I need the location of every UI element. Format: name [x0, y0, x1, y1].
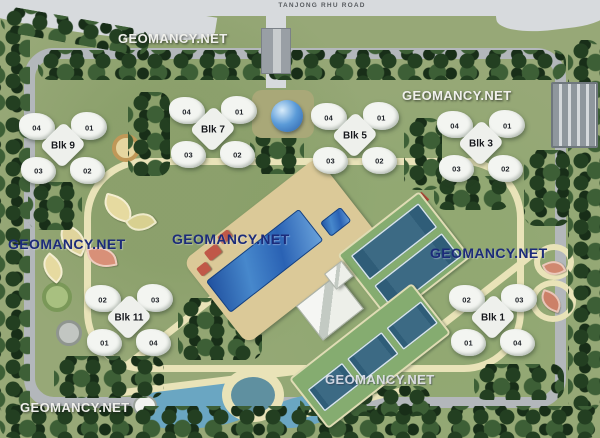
unit-number: 02 [233, 150, 242, 159]
road-name-label: TANJONG RHU ROAD [222, 2, 422, 9]
unit-number: 01 [235, 107, 244, 116]
watermark: GEOMANCY.NET [325, 372, 435, 387]
block-label: Blk 7 [201, 125, 225, 136]
unit-number: 03 [151, 295, 160, 304]
unit-number: 01 [100, 338, 109, 347]
block-label: Blk 5 [343, 131, 367, 142]
unit-number: 02 [98, 296, 107, 305]
entrance-gatehouse [261, 28, 291, 74]
unit-number: 03 [34, 166, 43, 175]
unit-number: 02 [83, 166, 92, 175]
fountain-dome [271, 100, 303, 132]
block-7: 04 01 03 02 Blk 7 [166, 90, 260, 170]
block-9: 04 01 03 02 Blk 9 [16, 106, 110, 186]
tree-cluster [524, 150, 570, 226]
unit-number: 02 [375, 156, 384, 165]
unit-number: 03 [326, 156, 335, 165]
garden-circle [56, 320, 82, 346]
watermark: GEOMANCY.NET [430, 245, 548, 261]
unit-number: 02 [462, 296, 471, 305]
block-label: Blk 1 [481, 313, 505, 324]
block-label: Blk 11 [115, 313, 144, 324]
unit-number: 01 [85, 123, 94, 132]
unit-number: 04 [32, 124, 41, 133]
unit-number: 03 [452, 164, 461, 173]
tree-border [0, 26, 30, 418]
garden-circle [42, 282, 72, 312]
block-5: 04 01 03 02 Blk 5 [308, 96, 402, 176]
unit-number: 02 [501, 164, 510, 173]
unit-number: 01 [503, 121, 512, 130]
block-1: 02 03 01 04 Blk 1 [446, 278, 540, 358]
tree-cluster [128, 92, 170, 176]
watermark: GEOMANCY.NET [20, 400, 130, 415]
tennis-court [386, 301, 438, 350]
site-plan-map: 04 01 03 02 Blk 9 04 01 03 02 Blk 7 04 0… [0, 0, 600, 438]
multi-storey-carpark [551, 82, 598, 148]
unit-number: 01 [464, 338, 473, 347]
public-road-curve-right [494, 0, 600, 37]
children-pool [320, 207, 352, 237]
unit-number: 01 [377, 113, 386, 122]
watermark: GEOMANCY.NET [402, 88, 512, 103]
watermark: GEOMANCY.NET [172, 231, 290, 247]
unit-number: 04 [450, 122, 459, 131]
tree-cluster [474, 364, 564, 400]
gatehouse-detail [273, 29, 281, 73]
tennis-court [307, 363, 359, 412]
block-3: 04 01 03 02 Blk 3 [434, 104, 528, 184]
unit-number: 04 [182, 108, 191, 117]
unit-number: 03 [184, 150, 193, 159]
tree-cluster [28, 182, 82, 230]
block-11: 02 03 01 04 Blk 11 [82, 278, 176, 358]
unit-number: 03 [515, 295, 524, 304]
block-label: Blk 9 [51, 141, 75, 152]
block-label: Blk 3 [469, 139, 493, 150]
tree-row [38, 50, 566, 80]
watermark: GEOMANCY.NET [8, 236, 126, 252]
unit-number: 04 [513, 338, 522, 347]
unit-number: 04 [324, 114, 333, 123]
watermark: GEOMANCY.NET [118, 31, 228, 46]
pavilion-roof [196, 261, 212, 276]
tree-cluster [54, 356, 164, 398]
unit-number: 04 [149, 338, 158, 347]
